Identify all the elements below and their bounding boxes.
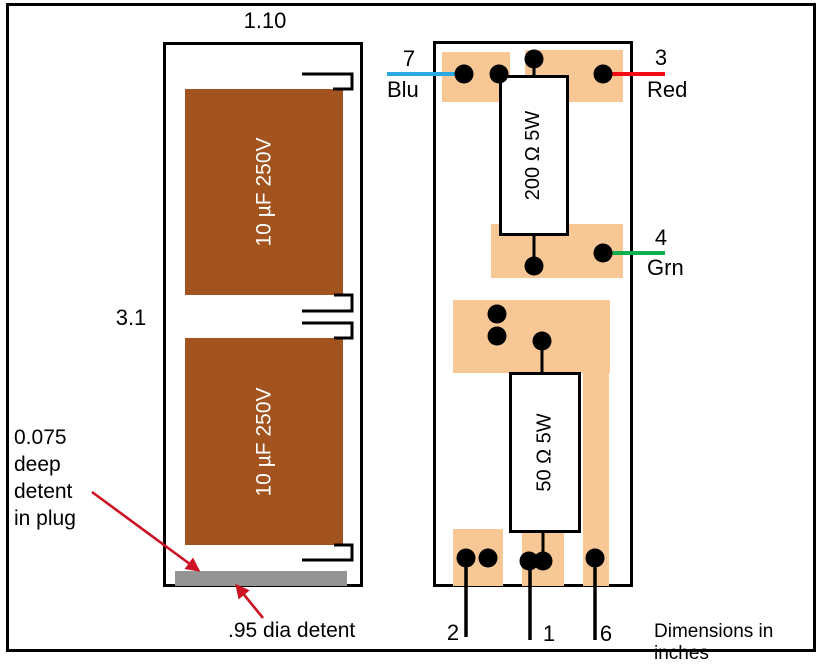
grn-wire-label: Grn <box>647 255 684 281</box>
dia-detent-arrow <box>237 586 263 618</box>
detent-note-line: deep <box>14 451 76 478</box>
hole <box>488 305 507 324</box>
annotation-arrows <box>92 492 263 618</box>
red-wire-label: Red <box>647 77 687 103</box>
hole <box>455 65 474 84</box>
hole <box>525 257 544 276</box>
detent-diameter-label: .95 dia detent <box>228 619 355 643</box>
hole <box>479 549 498 568</box>
width-dimension-label: 1.10 <box>233 8 297 34</box>
hole <box>534 552 553 571</box>
detent-note-arrow <box>92 492 198 570</box>
detent-note-line: 0.075 <box>14 424 76 451</box>
detent-note-line: detent <box>14 478 76 505</box>
cap-bottom-lead-tab <box>302 545 352 560</box>
hole <box>488 327 507 346</box>
pin-2-label: 2 <box>441 620 465 646</box>
hole <box>457 549 476 568</box>
pin-7-label: 7 <box>396 46 422 72</box>
hole <box>525 50 544 69</box>
capacitor-lead-tabs <box>302 74 352 560</box>
board-traces <box>534 59 543 561</box>
pin-3-label: 3 <box>648 45 674 71</box>
height-dimension-label: 3.1 <box>108 305 154 331</box>
hole <box>594 65 613 84</box>
hole <box>594 244 613 263</box>
cap-bottom-upper-lead-tab <box>302 323 352 338</box>
pin-1-label: 1 <box>537 621 561 647</box>
cap-top-lead-tab <box>302 74 352 89</box>
pin-6-label: 6 <box>594 621 618 647</box>
units-note: Dimensions in inches <box>654 621 826 665</box>
hole <box>586 549 605 568</box>
pin-4-label: 4 <box>648 225 674 251</box>
detent-note-line: in plug <box>14 505 76 532</box>
blu-wire-label: Blu <box>387 77 419 103</box>
wiring-diagram: 10 µF 250V 10 µF 250V 200 Ω 5W 50 Ω 5W <box>0 0 826 665</box>
solder-holes <box>455 50 613 571</box>
hole <box>533 332 552 351</box>
detent-note: 0.075 deep detent in plug <box>14 424 76 532</box>
hole <box>490 65 509 84</box>
cap-top-lower-lead-tab <box>302 295 352 311</box>
wires <box>387 74 665 253</box>
